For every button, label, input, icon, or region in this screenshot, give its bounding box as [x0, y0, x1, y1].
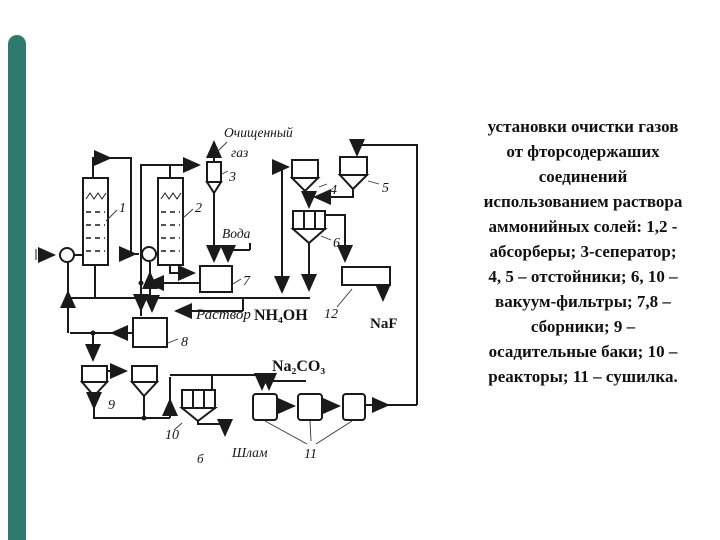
- tag-4: 4: [330, 183, 337, 198]
- naf-formula-label: NaF: [370, 316, 398, 332]
- settler-5: [315, 157, 379, 197]
- slurry-line: [170, 375, 262, 390]
- caption-line: абсорберы; 3-сеператор;: [446, 239, 720, 264]
- reactor-12: [337, 267, 390, 307]
- tag-8: 8: [181, 335, 188, 350]
- b-mark-label: б: [197, 451, 204, 466]
- caption-line: вакуум-фильтры; 7,8 –: [446, 289, 720, 314]
- separator-3: [207, 142, 228, 261]
- absorber-column-2: [158, 178, 183, 265]
- na2co3-formula-label: Na₂CO₃: [272, 358, 325, 375]
- vacuum-filter-10: [174, 390, 225, 435]
- tag-10: 10: [165, 428, 179, 443]
- purified-gas-label-line1: Очищенный: [224, 125, 293, 140]
- tag-9: 9: [108, 398, 115, 413]
- tag-1: 1: [119, 201, 126, 216]
- figure-caption: установки очистки газов от фторсодержаши…: [446, 114, 720, 389]
- collector-8: [70, 318, 178, 360]
- tag-2: 2: [195, 201, 202, 216]
- purified-gas-label-line2: газ: [231, 145, 248, 160]
- tag-5: 5: [382, 181, 389, 196]
- tag-7: 7: [243, 274, 251, 289]
- tag-12: 12: [324, 307, 338, 322]
- caption-line: от фторсодержаших: [446, 139, 720, 164]
- collector-7: [139, 265, 242, 292]
- caption-line: 4, 5 – отстойники; 6, 10 –: [446, 264, 720, 289]
- caption-line: соединений: [446, 164, 720, 189]
- nh4oh-formula-label: NH₄OH: [254, 307, 308, 324]
- pump-1: [60, 248, 74, 262]
- na2co3-inlet-line: [269, 381, 306, 389]
- caption-line: сборники; 9 –: [446, 314, 720, 339]
- caption-line: аммонийных солей: 1,2 -: [446, 214, 720, 239]
- slide: { "accent": { "color": "#2e7a6e" }, "cap…: [0, 0, 720, 540]
- gas-feed-inlet: [36, 248, 83, 262]
- water-label: Вода: [222, 226, 251, 241]
- tag-3: 3: [228, 170, 236, 185]
- caption-line: реакторы; 11 – сушилка.: [446, 364, 720, 389]
- caption-line: использованием раствора: [446, 189, 720, 214]
- pump-2: [142, 247, 156, 261]
- water-inlet-line: [228, 243, 250, 261]
- tag-11: 11: [304, 447, 317, 462]
- caption-line: установки очистки газов: [446, 114, 720, 139]
- sludge-label: Шлам: [231, 445, 268, 460]
- tag-6: 6: [333, 236, 340, 251]
- solution-word-label: Раствор: [195, 307, 251, 323]
- absorber-column-1: [83, 178, 108, 298]
- caption-line: осадительные баки; 10 –: [446, 339, 720, 364]
- settling-tanks-9: [82, 366, 170, 421]
- units-11: [253, 394, 417, 444]
